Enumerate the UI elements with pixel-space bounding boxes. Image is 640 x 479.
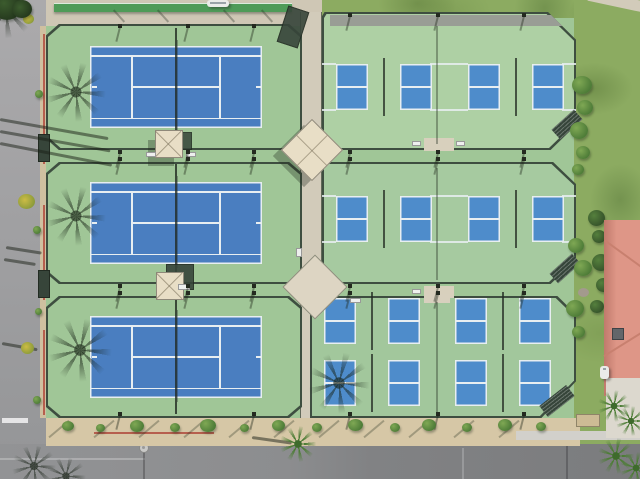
flowering-shrub [18,194,35,209]
pickleball-half [532,196,564,242]
pickleball-net [371,354,373,412]
shrub [170,423,180,432]
bench [456,141,465,146]
tennis-court [90,182,262,264]
hedge [572,164,584,175]
shrub [536,422,546,431]
palm-shadow [48,318,112,382]
pickleball-half [532,64,564,110]
shrub [390,423,400,432]
pickleball-net [515,190,517,248]
shrub [62,421,74,431]
light-pole [186,24,190,28]
pickleball-court [455,360,551,406]
bench [412,289,421,294]
palm-shadow [308,352,370,414]
hedge [572,76,592,94]
hedge [568,238,584,253]
light-pole [186,291,190,295]
pickleball-half [400,196,432,242]
curb-plant [35,308,42,315]
pickleball-half [468,196,500,242]
pickleball-court [336,64,432,110]
light-pole [252,284,256,288]
pickleball-net [515,58,517,116]
light-pole [348,412,352,416]
light-pole [118,412,122,416]
light-pole [118,24,122,28]
tennis-net [175,164,177,280]
light-pole [118,284,122,288]
pole-shadow-line [436,302,438,414]
hedge [570,122,588,139]
tennis-net [175,28,177,144]
light-pole [186,150,190,154]
light-pole [436,150,440,154]
light-pole [522,157,526,161]
palm-tree [280,426,316,462]
pole-shadow-line [436,168,438,280]
center-mark [256,222,261,224]
pickleball-net [502,354,504,412]
shrub [348,419,363,431]
light-pole [522,412,526,416]
light-pole [252,291,256,295]
pickleball-half [519,298,551,344]
palm-shadow [46,186,106,246]
bench [350,298,361,303]
tennis-court [90,316,262,398]
pickleball-court [324,298,420,344]
tennis-court [90,46,262,128]
light-pole [348,284,352,288]
pickleball-half [455,360,487,406]
court-connector-line [562,63,576,65]
pickleball-net [371,292,373,350]
curb-plant [35,90,43,98]
light-pole [118,157,122,161]
shrub [422,419,436,431]
pickleball-half [455,298,487,344]
shrub [200,419,216,432]
curb-plant [33,396,41,404]
pickleball-half [388,298,420,344]
center-mark [256,356,261,358]
court-connector-line [322,63,336,65]
light-pole [252,157,256,161]
building-roof [604,220,640,396]
light-pole [522,13,526,17]
pickleball-net [502,292,504,350]
roof-ridge [604,239,640,270]
light-pole [252,150,256,154]
bench [412,141,421,146]
court-connector-line [322,109,336,111]
pickleball-half [400,64,432,110]
flowering-shrub [21,342,34,354]
hedge [574,260,592,276]
pickleball-court [336,196,432,242]
light-pole [436,13,440,17]
light-pole [252,412,256,416]
pickleball-half [468,64,500,110]
shrub [498,419,512,431]
palm-tree [616,406,640,436]
tree-canopy [588,210,605,226]
pickleball-net [383,190,385,248]
pickleball-court [468,196,564,242]
light-pole [348,157,352,161]
shrub [312,423,322,432]
shrub [240,424,249,432]
court-connector-line [322,195,336,197]
light-pole [522,291,526,295]
pickleball-half [388,360,420,406]
bench [146,152,156,157]
center-mark [256,86,261,88]
tree-canopy [12,0,32,18]
light-pole [522,284,526,288]
curb-plant [33,226,41,234]
light-pole [252,24,256,28]
light-pole [348,150,352,154]
light-pole [348,13,352,17]
pole-shadow-line [436,26,438,144]
shade-canopy-1 [155,130,183,158]
light-pole [186,157,190,161]
pickleball-half [336,196,368,242]
light-pole [522,150,526,154]
light-pole [186,284,190,288]
hedge [566,300,584,317]
pickleball-court [455,298,551,344]
light-pole [118,150,122,154]
light-pole [436,157,440,161]
light-pole [348,291,352,295]
utility-pad [576,414,600,427]
tree-canopy [590,300,604,313]
court-gate [38,270,50,298]
hedge [576,146,590,159]
light-pole [436,291,440,295]
golf-cart [600,366,609,379]
court-connector-line [322,241,336,243]
palm-shadow [46,62,106,122]
rocks [578,288,589,297]
shrub [272,420,285,431]
pickleball-half [336,64,368,110]
tennis-net [175,298,177,414]
bench [296,248,302,257]
shrub [462,423,472,432]
aerial-scene [0,0,640,479]
court-connector-line [562,195,576,197]
pickleball-net [383,58,385,116]
pickleball-court [468,64,564,110]
light-pole [118,291,122,295]
hedge [577,100,593,115]
light-pole [436,284,440,288]
shrub [130,420,144,432]
hedge [572,326,585,338]
chimney [612,328,624,340]
shrub [96,424,105,432]
